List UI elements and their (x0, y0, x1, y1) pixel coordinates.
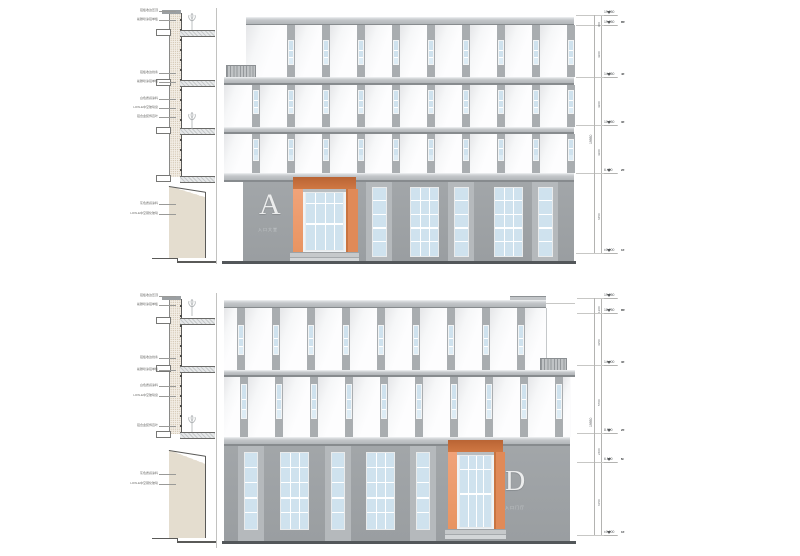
entrance-glass-door (305, 192, 344, 251)
callout-leader-line (159, 386, 176, 387)
window-mullion (499, 50, 503, 51)
window-mullion (569, 148, 573, 149)
section-edge-box (156, 175, 171, 182)
window-lower-pane (359, 58, 363, 64)
curtain-node (180, 335, 183, 337)
window-mullion (281, 482, 308, 483)
window-mullion (534, 148, 538, 149)
window-lower-pane (452, 410, 456, 418)
ground-window (372, 187, 387, 257)
window-mullion (499, 100, 503, 101)
window-mullion (539, 227, 552, 229)
callout-leader-line (159, 73, 176, 74)
window-mullion (557, 399, 561, 400)
window-mullion (417, 512, 429, 513)
door-mullion (325, 193, 326, 250)
wall-panel (400, 134, 427, 173)
section-grade-line (177, 541, 216, 542)
upper-window (498, 40, 504, 65)
callout-leader-line (159, 296, 176, 297)
curtain-node (180, 325, 183, 327)
door-band (306, 223, 343, 226)
window-mullion (245, 482, 257, 483)
section-floor-slab (180, 80, 215, 87)
upper-window (276, 384, 282, 419)
window-mullion (394, 50, 398, 51)
upper-window (428, 139, 434, 162)
wall-panel (470, 25, 497, 77)
segment-dim-value: 1200 (597, 299, 601, 313)
window-mullion (429, 148, 433, 149)
window-mullion (449, 338, 453, 339)
window-mullion (332, 482, 344, 483)
window-lower-pane (499, 108, 503, 113)
window-lower-pane (289, 58, 293, 64)
section-callout-label: 灰色质感涂料 (112, 472, 158, 476)
upper-window (288, 90, 294, 114)
wall-panel (260, 85, 287, 127)
level-floor-tag: 4F (621, 72, 629, 76)
wall-panel (470, 134, 497, 173)
curtain-node (180, 415, 183, 417)
ground-window (538, 187, 553, 257)
curtain-node (180, 405, 183, 407)
window-mullion (254, 148, 258, 149)
curtain-node (180, 89, 183, 91)
level-flag-line (604, 433, 617, 434)
window-mullion (522, 399, 526, 400)
window-lower-pane (289, 108, 293, 113)
section-edge-box (156, 29, 171, 36)
window-mullion (373, 241, 386, 242)
section-callout-label: 铝合金装饰百叶 (112, 115, 158, 119)
window-lower-pane (289, 155, 293, 160)
section-edge-box (156, 127, 171, 134)
wall-panel (283, 377, 310, 437)
window-mullion (373, 227, 386, 229)
section-callout-label: LOW-E中空钢化玻璃 (112, 212, 158, 216)
upper-window (343, 325, 349, 355)
wall-panel (315, 308, 342, 370)
window-mullion (324, 100, 328, 101)
window-mullion (455, 241, 468, 242)
wall-panel (365, 134, 392, 173)
window-lower-pane (394, 155, 398, 160)
window-lower-pane (522, 410, 526, 418)
upper-window (416, 384, 422, 419)
entrance-sublabel-a: 入口大堂 (258, 227, 302, 233)
curtain-node (180, 385, 183, 387)
wall-panel (330, 25, 357, 77)
window-lower-pane (487, 410, 491, 418)
window-mullion (534, 50, 538, 51)
section-edge-box (156, 317, 171, 324)
window-mullion (309, 338, 313, 339)
window-mullion (359, 100, 363, 101)
wall-panel (435, 85, 462, 127)
window-mullion (367, 467, 394, 468)
wall-panel (365, 25, 392, 77)
curtain-node (180, 159, 183, 161)
total-dim-line (594, 298, 595, 535)
level-flag-line (604, 173, 617, 174)
wall-panel (318, 377, 345, 437)
curtain-node (180, 395, 183, 397)
upper-window (463, 40, 469, 65)
door-band (460, 493, 491, 496)
level-flag-line (604, 77, 617, 78)
window-mullion (417, 399, 421, 400)
curtain-node (180, 69, 183, 71)
window-mullion (332, 497, 344, 499)
window-mullion (324, 148, 328, 149)
callout-leader-line (159, 426, 176, 427)
window-mullion (495, 241, 522, 242)
wall-panel (420, 308, 447, 370)
ground-window (416, 452, 430, 530)
wall-panel (248, 377, 275, 437)
window-mullion (245, 497, 257, 499)
section-callout-label: LOW-E中空玻璃窗 (112, 394, 158, 398)
wall-panel (330, 85, 357, 127)
parapet-band (224, 300, 546, 308)
entrance-glass-door (459, 455, 492, 528)
upper-window (483, 325, 489, 355)
window-mullion (411, 241, 438, 242)
section-curtain-line (181, 13, 182, 177)
curtain-node (180, 315, 183, 317)
wall-panel (295, 25, 322, 77)
window-lower-pane (359, 155, 363, 160)
section-floor-slab (180, 30, 215, 37)
callout-leader-line (159, 396, 176, 397)
window-mullion (281, 497, 308, 499)
window-mullion (569, 50, 573, 51)
window-mullion (373, 200, 386, 201)
wall-panel (353, 377, 380, 437)
floor-slab-band (224, 437, 570, 446)
wall-panel (423, 377, 450, 437)
window-mullion (499, 148, 503, 149)
callout-leader-line (159, 358, 176, 359)
window-lower-pane (534, 155, 538, 160)
level-floor-tag: 3F (621, 120, 629, 124)
window-lower-pane (312, 410, 316, 418)
section-callout-label: 灰色质感涂料 (112, 202, 158, 206)
rooftop-louver-unit (226, 65, 256, 77)
window-mullion (487, 399, 491, 400)
upper-window (521, 384, 527, 419)
wall-panel (505, 85, 532, 127)
window-lower-pane (429, 108, 433, 113)
wall-panel (455, 308, 482, 370)
wall-panel (224, 134, 252, 173)
wall-panel (388, 377, 415, 437)
floor-slab-band (224, 370, 575, 377)
upper-window (533, 40, 539, 65)
window-mullion (429, 50, 433, 51)
right-wing-roofline (546, 303, 575, 304)
upper-window (498, 90, 504, 114)
window-mullion (411, 200, 438, 201)
upper-window (241, 384, 247, 419)
window-lower-pane (429, 58, 433, 64)
window-mullion (281, 512, 308, 513)
window-mullion (417, 497, 429, 499)
window-lower-pane (347, 410, 351, 418)
section-ground-face-line (205, 192, 206, 258)
plant-icon (187, 13, 197, 30)
section-ground-hatch (169, 186, 206, 258)
floor-slab-band (224, 173, 574, 182)
window-lower-pane (534, 108, 538, 113)
wall-panel (528, 377, 555, 437)
section-callout-label: 白色质感涂料 (112, 97, 158, 101)
level-flag-line (604, 25, 617, 26)
section-callout-label: 铝板收边压顶 (112, 9, 158, 13)
curtain-node (180, 19, 183, 21)
window-mullion (534, 100, 538, 101)
entrance-portal-right-jamb (346, 189, 358, 261)
window-lower-pane (519, 347, 523, 354)
window-mullion (367, 512, 394, 513)
upper-window (323, 139, 329, 162)
upper-window (358, 40, 364, 65)
window-mullion (332, 467, 344, 468)
window-mullion (411, 227, 438, 229)
window-lower-pane (277, 410, 281, 418)
window-lower-pane (394, 108, 398, 113)
callout-leader-line (159, 117, 176, 118)
upper-window (253, 90, 259, 114)
entrance-letter-a: A (259, 190, 281, 220)
level-floor-tag: 2F (621, 168, 629, 172)
segment-dim-value: 6150 (597, 492, 601, 506)
section-boundary-line (216, 8, 217, 264)
wall-panel (540, 134, 567, 173)
section-grade-line (152, 258, 178, 259)
wall-panel (400, 25, 427, 77)
window-lower-pane (379, 347, 383, 354)
entrance-sublabel-d: 入口门厅 (505, 505, 535, 511)
window-mullion (539, 200, 552, 201)
window-lower-pane (359, 108, 363, 113)
window-lower-pane (417, 410, 421, 418)
ground-window (244, 452, 258, 530)
window-lower-pane (464, 108, 468, 113)
window-lower-pane (569, 108, 573, 113)
window-mullion (385, 453, 386, 529)
window-lower-pane (569, 155, 573, 160)
curtain-node (180, 425, 183, 427)
window-mullion (324, 50, 328, 51)
entrance-portal-head (293, 177, 356, 189)
upper-window (448, 325, 454, 355)
wall-panel (435, 134, 462, 173)
ground-line (222, 541, 576, 544)
ground-window (331, 452, 345, 530)
window-mullion (411, 214, 438, 215)
section-callout-label: 氟碳喷涂铝单板 (112, 80, 158, 84)
window-mullion (239, 338, 243, 339)
wall-panel (505, 134, 532, 173)
upper-window (568, 40, 574, 65)
wall-panel (563, 377, 570, 437)
window-lower-pane (557, 410, 561, 418)
entrance-portal-right-jamb (494, 452, 505, 538)
section-wall-hatch (169, 13, 181, 177)
upper-window (533, 90, 539, 114)
window-mullion (484, 338, 488, 339)
wall-panel (224, 85, 252, 127)
window-mullion (254, 100, 258, 101)
entrance-letter-d: D (505, 468, 525, 496)
window-mullion (332, 512, 344, 513)
upper-window (358, 90, 364, 114)
wall-panel (330, 134, 357, 173)
door-transom (460, 469, 491, 470)
callout-leader-line (159, 474, 176, 475)
window-mullion (277, 399, 281, 400)
curtain-node (180, 109, 183, 111)
window-lower-pane (499, 155, 503, 160)
window-mullion (290, 453, 291, 529)
door-mullion (483, 456, 484, 527)
section-floor-slab (180, 318, 215, 325)
upper-window (413, 325, 419, 355)
window-lower-pane (394, 58, 398, 64)
upper-window (451, 384, 457, 419)
window-lower-pane (449, 347, 453, 354)
ground-window (280, 452, 309, 530)
upper-window (463, 139, 469, 162)
wall-panel (385, 308, 412, 370)
upper-window (358, 139, 364, 162)
level-flag-line (604, 535, 617, 536)
upper-window (393, 40, 399, 65)
callout-leader-line (159, 370, 176, 371)
wall-panel (400, 85, 427, 127)
section-callout-label: 白色质感涂料 (112, 384, 158, 388)
floor-slab-band (224, 77, 574, 85)
level-flag-line (604, 125, 617, 126)
curtain-node (180, 345, 183, 347)
wall-panel (540, 25, 567, 77)
window-mullion (464, 148, 468, 149)
curtain-node (180, 39, 183, 41)
curtain-node (180, 305, 183, 307)
level-flag-line (604, 365, 617, 366)
wall-panel (470, 85, 497, 127)
window-mullion (367, 482, 394, 483)
upper-window (346, 384, 352, 419)
upper-window (323, 40, 329, 65)
window-mullion (359, 50, 363, 51)
parapet-band (246, 17, 574, 25)
wall-panel (224, 308, 237, 370)
plant-icon (187, 112, 197, 129)
wall-panel (260, 134, 287, 173)
window-mullion (382, 399, 386, 400)
section-callout-label: 氟碳喷涂铝单板 (112, 368, 158, 372)
window-mullion (452, 399, 456, 400)
upper-window (381, 384, 387, 419)
window-mullion (242, 399, 246, 400)
callout-leader-line (159, 20, 176, 21)
curtain-node (180, 119, 183, 121)
section-floor-slab (180, 432, 215, 439)
door-mullion (476, 456, 477, 527)
ground-line (222, 261, 576, 264)
window-mullion (245, 512, 257, 513)
upper-window (428, 90, 434, 114)
level-floor-tag: RF (621, 20, 629, 24)
section-ground-face-line (205, 456, 206, 538)
wall-panel (435, 25, 462, 77)
entrance-portal-head (448, 440, 503, 452)
section-ground-hatch (169, 450, 206, 538)
dimension-chain-line (601, 15, 602, 253)
level-floor-tag: M (621, 457, 629, 461)
section-callout-label: 氟碳喷涂铝单板 (112, 18, 158, 22)
curtain-node (180, 59, 183, 61)
window-mullion (495, 214, 522, 215)
segment-dim-value: 4200 (597, 94, 601, 108)
wall-panel (365, 85, 392, 127)
window-lower-pane (534, 58, 538, 64)
window-mullion (299, 453, 300, 529)
window-mullion (539, 214, 552, 215)
window-lower-pane (309, 347, 313, 354)
window-mullion (289, 50, 293, 51)
upper-window (498, 139, 504, 162)
callout-leader-line (159, 99, 176, 100)
wall-panel (490, 308, 517, 370)
upper-window (463, 90, 469, 114)
door-transom (306, 203, 343, 204)
callout-leader-line (159, 214, 176, 215)
window-lower-pane (484, 347, 488, 354)
total-dim-line (594, 15, 595, 253)
level-flag-line (604, 462, 617, 463)
upper-window (323, 90, 329, 114)
section-callout-label: 铝板收边压顶 (112, 294, 158, 298)
level-flag-line (604, 253, 617, 254)
window-lower-pane (464, 155, 468, 160)
level-floor-tag: 2F (621, 428, 629, 432)
window-mullion (289, 100, 293, 101)
window-mullion (569, 100, 573, 101)
window-lower-pane (499, 58, 503, 64)
window-mullion (359, 148, 363, 149)
window-mullion (513, 188, 514, 256)
level-flag-line (604, 313, 617, 314)
curtain-node (180, 149, 183, 151)
section-grade-line (177, 261, 216, 262)
window-mullion (414, 338, 418, 339)
section-callout-label: LOW-E中空钢化玻璃 (112, 482, 158, 486)
callout-leader-line (159, 305, 176, 306)
window-mullion (289, 148, 293, 149)
window-mullion (312, 399, 316, 400)
floor-slab-band (224, 127, 574, 134)
segment-dim-value: 2400 (597, 441, 601, 455)
segment-dim-value: 900 (597, 13, 601, 27)
level-flag-line (604, 15, 617, 16)
upper-window (393, 90, 399, 114)
plant-icon (187, 299, 197, 316)
level-floor-tag: RF (621, 308, 629, 312)
